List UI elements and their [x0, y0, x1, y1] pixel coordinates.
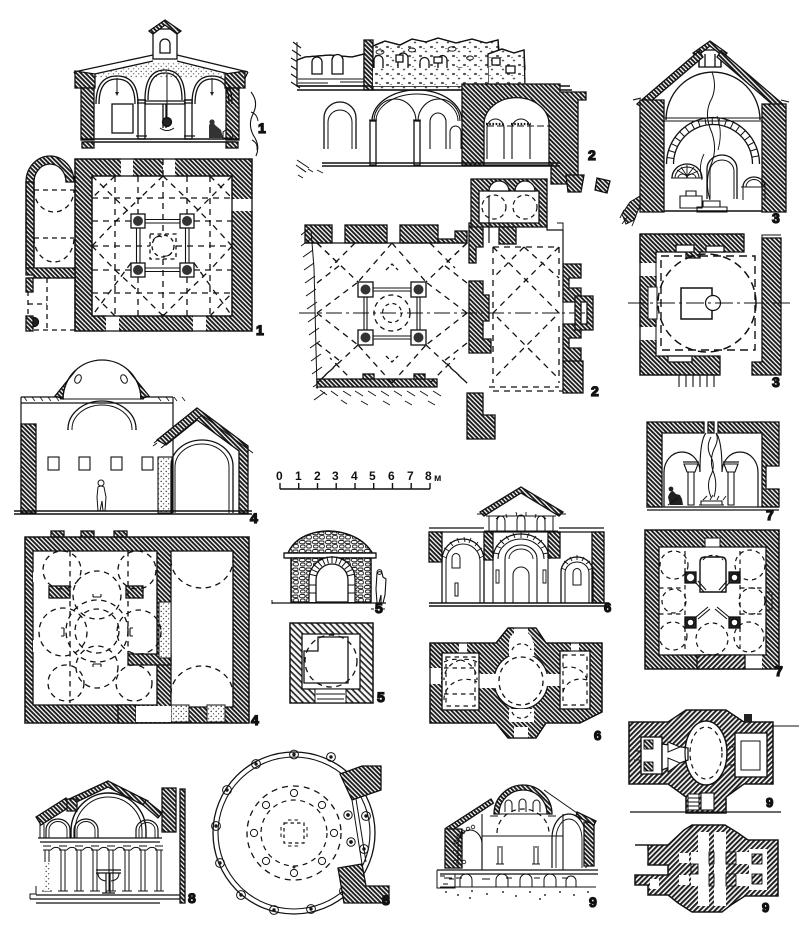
svg-text:9: 9 — [762, 900, 769, 915]
svg-text:5: 5 — [377, 689, 385, 705]
svg-text:8: 8 — [425, 469, 432, 483]
svg-text:4: 4 — [251, 712, 259, 728]
svg-text:7: 7 — [407, 469, 414, 483]
svg-text:8: 8 — [382, 892, 390, 908]
svg-text:6: 6 — [604, 600, 611, 615]
svg-text:5: 5 — [375, 600, 383, 616]
svg-text:6: 6 — [388, 469, 395, 483]
svg-text:1: 1 — [256, 322, 264, 338]
svg-text:м: м — [434, 473, 441, 484]
svg-text:6: 6 — [594, 728, 601, 743]
svg-text:4: 4 — [250, 510, 258, 526]
svg-text:2: 2 — [314, 469, 321, 483]
svg-text:1: 1 — [295, 469, 302, 483]
svg-text:8: 8 — [188, 890, 196, 906]
svg-text:3: 3 — [772, 210, 780, 226]
svg-text:3: 3 — [332, 469, 339, 483]
svg-text:4: 4 — [351, 469, 358, 483]
svg-text:5: 5 — [369, 469, 376, 483]
svg-text:9: 9 — [589, 894, 597, 910]
svg-text:2: 2 — [591, 383, 599, 399]
svg-text:7: 7 — [775, 663, 783, 679]
svg-text:9: 9 — [766, 795, 773, 810]
svg-text:7: 7 — [766, 507, 774, 523]
svg-text:2: 2 — [588, 147, 596, 163]
svg-text:1: 1 — [258, 120, 266, 136]
svg-text:0: 0 — [276, 469, 283, 483]
svg-text:3: 3 — [772, 374, 780, 390]
